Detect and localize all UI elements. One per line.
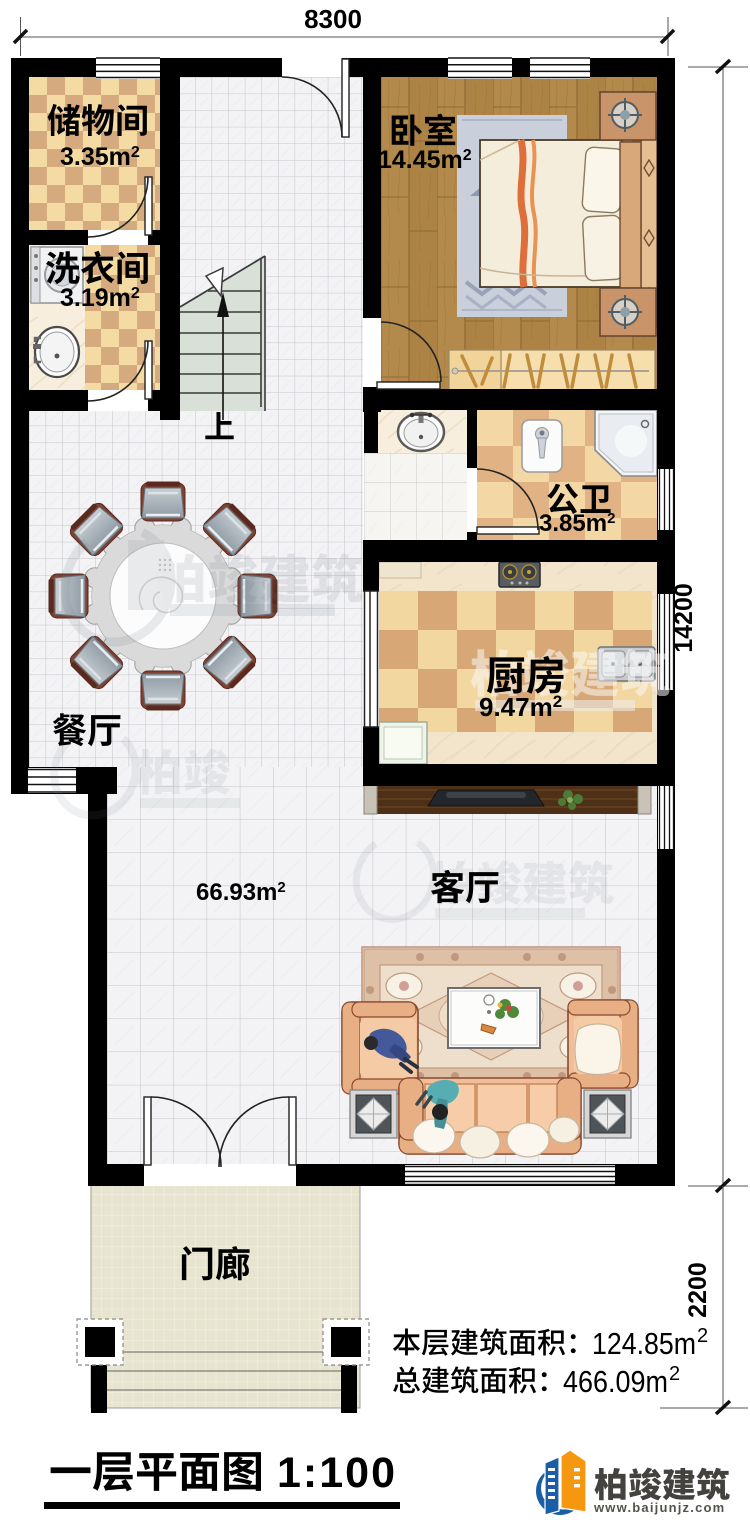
svg-text:14.45m2: 14.45m2 <box>378 146 472 174</box>
svg-text:466.09m: 466.09m <box>563 1364 668 1399</box>
svg-text:66.93m2: 66.93m2 <box>196 879 286 906</box>
svg-text:3.35m2: 3.35m2 <box>60 143 140 171</box>
svg-text:1:100: 1:100 <box>277 1449 397 1497</box>
svg-text:2200: 2200 <box>684 1262 712 1318</box>
svg-text:124.85m: 124.85m <box>592 1326 696 1361</box>
svg-text:3.19m2: 3.19m2 <box>60 284 140 312</box>
svg-text:www.baijunjz.com: www.baijunjz.com <box>593 1500 725 1515</box>
svg-text:14200: 14200 <box>670 583 698 653</box>
svg-text:2: 2 <box>697 1325 708 1347</box>
svg-text:2: 2 <box>669 1363 680 1385</box>
svg-text:9.47m2: 9.47m2 <box>479 692 562 722</box>
svg-text:3.85m2: 3.85m2 <box>539 510 615 537</box>
svg-text:8300: 8300 <box>304 4 362 34</box>
